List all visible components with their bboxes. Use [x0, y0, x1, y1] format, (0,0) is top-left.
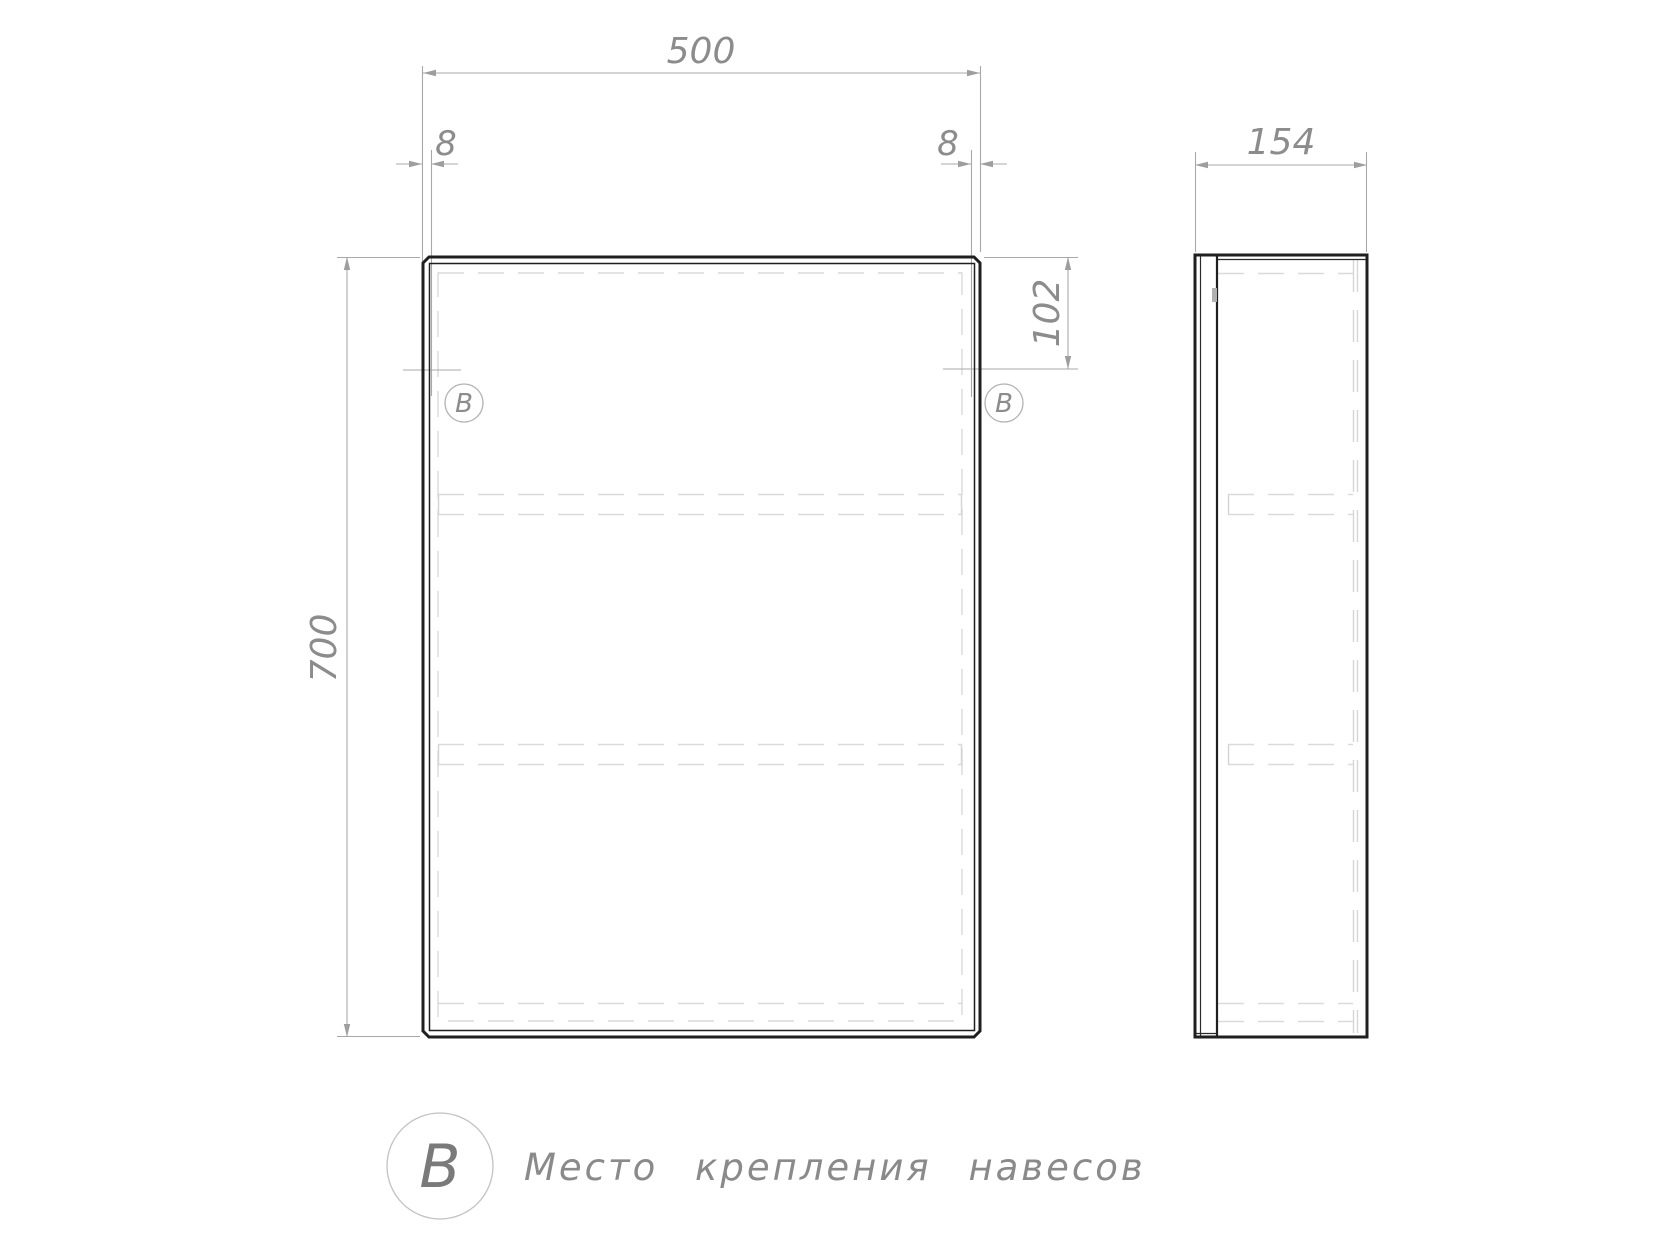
dimension-lines: 500 8 8 700 10	[304, 31, 1367, 1037]
arrowhead-in-right	[958, 161, 971, 167]
dim-offset-left-8: 8	[396, 124, 458, 167]
dim-width-500: 500	[423, 31, 980, 76]
marker-letter: В	[455, 389, 473, 419]
dim-offset-left-text: 8	[435, 124, 457, 164]
dim-offset-right-8: 8	[937, 124, 1007, 167]
dim-mount-offset-text: 102	[1027, 279, 1068, 348]
side-body-outer-edge	[1195, 255, 1367, 1037]
arrowhead-in-right	[409, 161, 422, 167]
side-shelf-1	[1228, 495, 1353, 515]
arrowhead-left	[1195, 162, 1208, 168]
mount-marker-left: В	[445, 384, 483, 422]
front-door-outer-edge	[423, 257, 980, 1037]
legend-text: Место крепления навесов	[524, 1146, 1146, 1189]
side-view-outline	[1195, 255, 1367, 1037]
side-hinge-mark	[1212, 288, 1217, 302]
front-door-inner-edge	[430, 264, 975, 1031]
side-shelf-2	[1228, 745, 1353, 765]
front-shelf-1	[438, 495, 962, 515]
arrowhead-right	[967, 70, 980, 76]
dim-width-text: 500	[667, 31, 736, 72]
front-view-hidden-lines	[438, 273, 962, 1021]
marker-letter: В	[995, 389, 1013, 419]
legend-symbol-letter: В	[419, 1132, 460, 1202]
arrowhead-bottom	[344, 1024, 350, 1037]
arrowhead-right	[1354, 162, 1367, 168]
arrowhead-bottom	[1065, 356, 1071, 369]
front-hidden-body-outline	[438, 273, 962, 1021]
dim-mount-offset-102: 102	[1027, 257, 1071, 369]
arrowhead-top	[1065, 257, 1071, 270]
arrowhead-left	[423, 70, 436, 76]
dim-height-700: 700	[304, 257, 350, 1037]
front-shelf-2	[438, 745, 962, 765]
technical-drawing-page: 500 8 8 700 10	[0, 0, 1680, 1260]
arrowhead-top	[344, 257, 350, 270]
legend: В Место крепления навесов	[387, 1113, 1146, 1219]
arrowhead-in-left	[980, 161, 993, 167]
dim-depth-154: 154	[1195, 122, 1367, 168]
mount-marker-right: В	[985, 384, 1023, 422]
dim-offset-right-text: 8	[937, 124, 959, 164]
dim-depth-text: 154	[1247, 122, 1316, 163]
side-view-hidden-lines	[1218, 260, 1358, 1033]
front-view-outline	[423, 257, 980, 1037]
dim-height-text: 700	[304, 614, 345, 683]
cabinet-technical-drawing: 500 8 8 700 10	[0, 0, 1680, 1260]
